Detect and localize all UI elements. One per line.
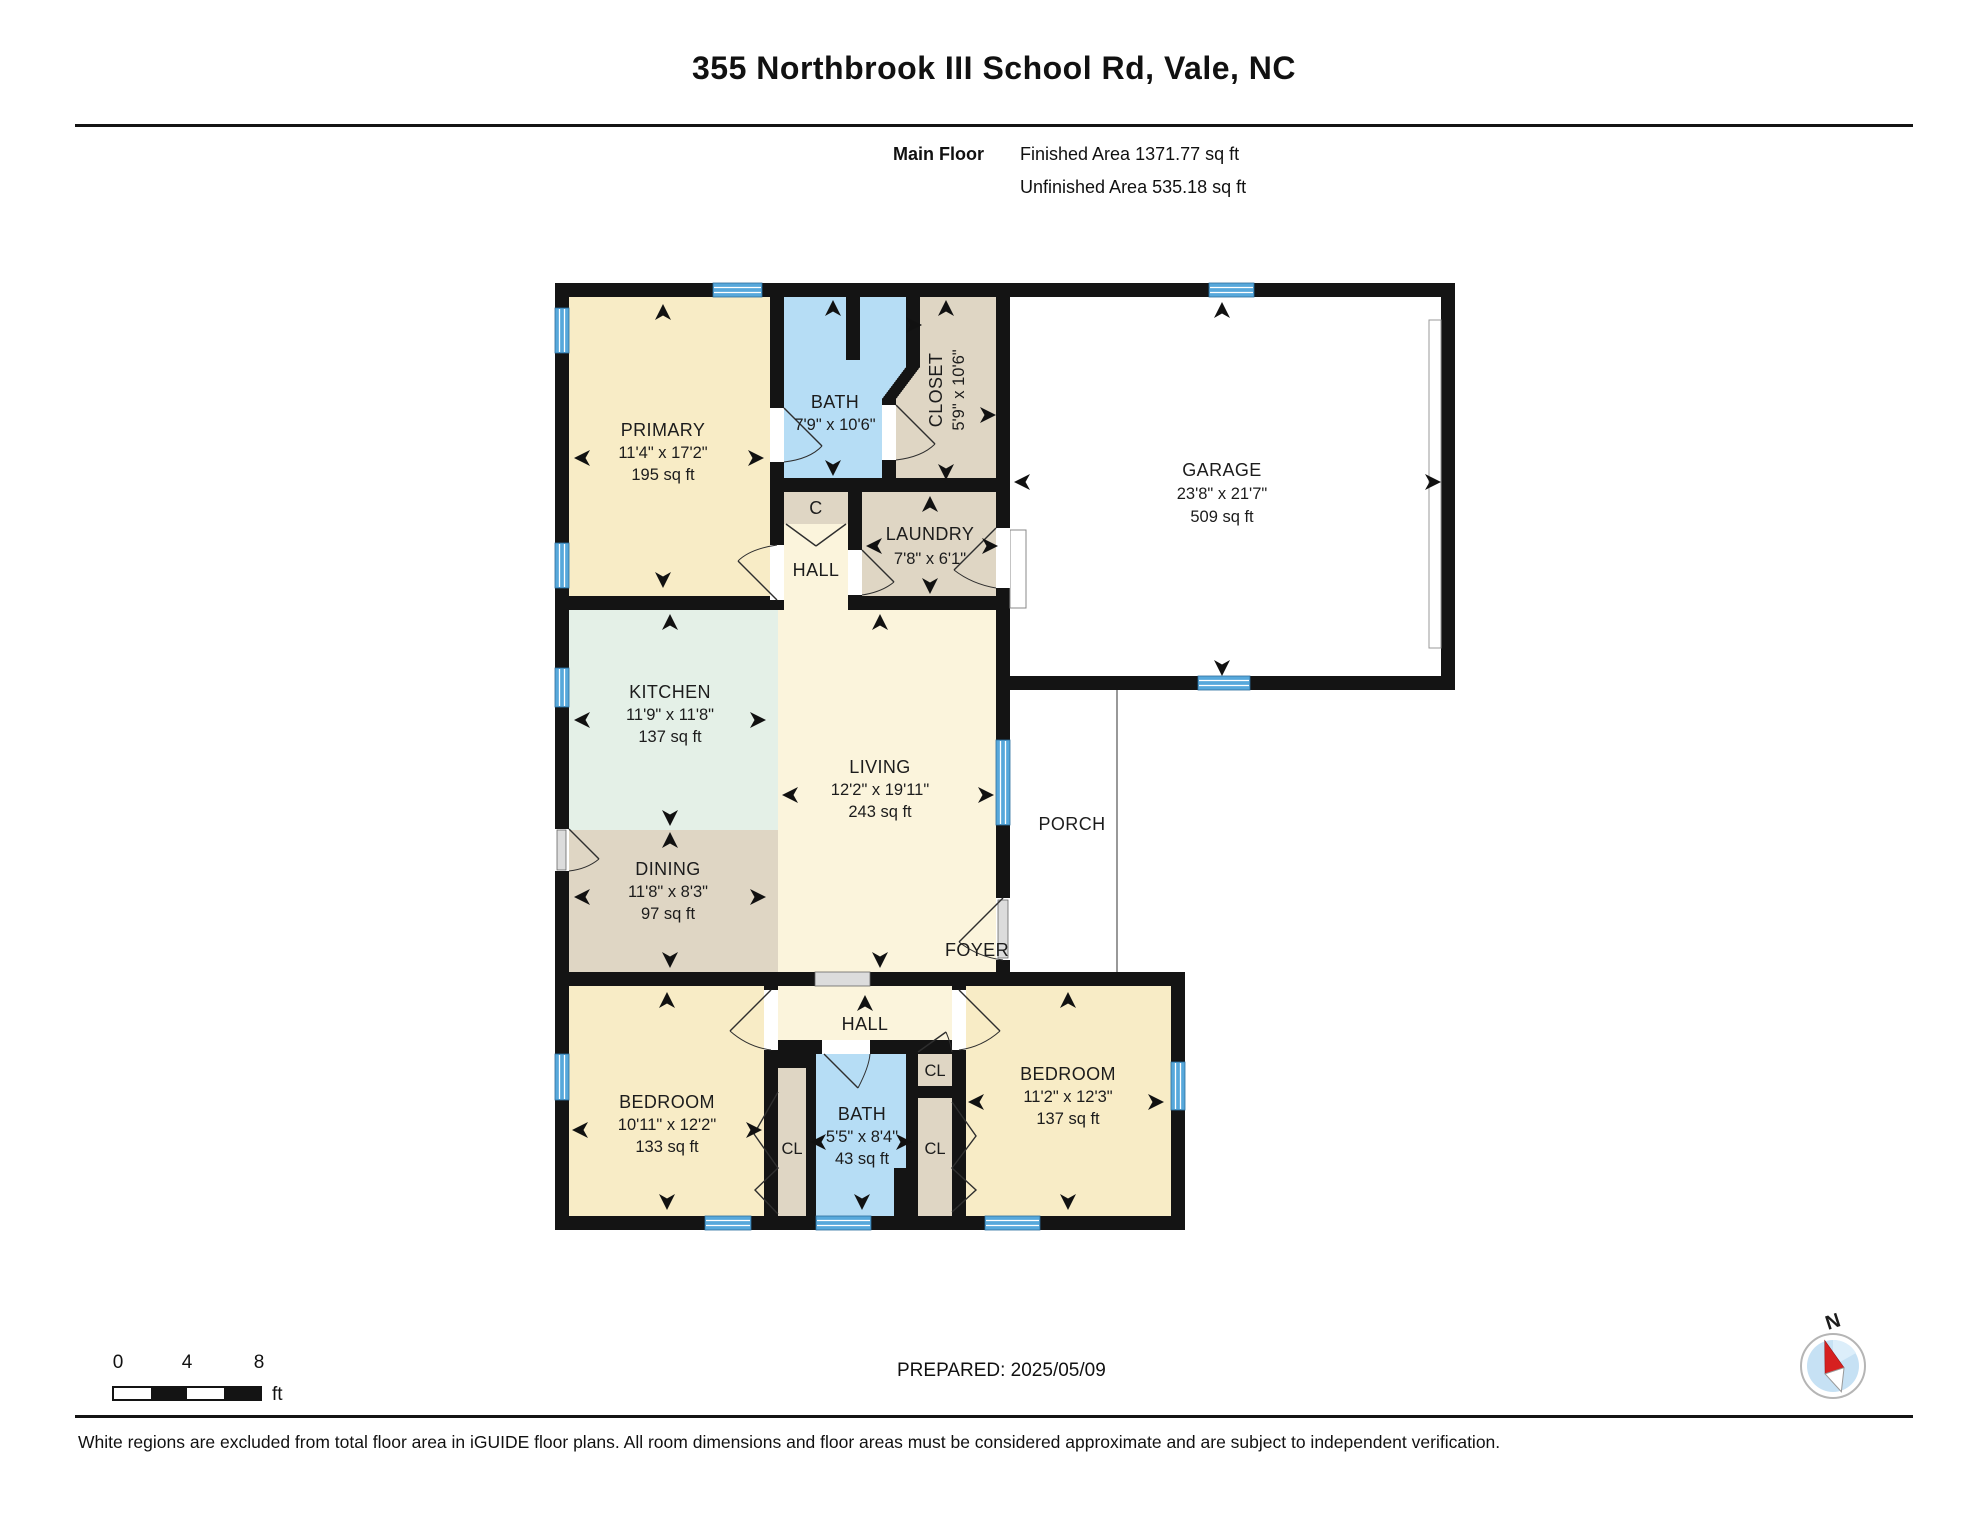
prepared-date: PREPARED: 2025/05/09 — [897, 1360, 1106, 1382]
kitchen-area: 137 sq ft — [638, 728, 702, 746]
scale-segment — [114, 1388, 151, 1399]
scale-segment — [224, 1388, 261, 1399]
foyer-label: FOYER — [945, 940, 1009, 960]
unfinished-area-text: Unfinished Area 535.18 sq ft — [1020, 177, 1246, 198]
bath1-label: BATH — [811, 392, 859, 412]
floor-label: Main Floor — [893, 144, 984, 165]
footer-divider — [75, 1415, 1913, 1418]
page-title: 355 Northbrook III School Rd, Vale, NC — [0, 50, 1988, 87]
living-area: 243 sq ft — [848, 803, 912, 821]
cl-bottom-label: CL — [924, 1140, 945, 1158]
laundry-dims: 7'8" x 6'1" — [894, 550, 966, 568]
living-dims: 12'2" x 19'11" — [831, 781, 930, 799]
living-label: LIVING — [849, 757, 910, 777]
closet-c-label: C — [809, 498, 822, 518]
garage-dims: 23'8" x 21'7" — [1177, 485, 1268, 503]
hall2-label: HALL — [842, 1014, 889, 1034]
opening-hall-lower — [815, 972, 870, 986]
bedroom-left-area: 133 sq ft — [635, 1138, 699, 1156]
porch-label: PORCH — [1038, 814, 1105, 834]
garage-label: GARAGE — [1182, 460, 1261, 480]
window-icon — [816, 1216, 871, 1230]
hall1-label: HALL — [793, 560, 840, 580]
garage-area: 509 sq ft — [1190, 508, 1254, 526]
scale-tick-4: 4 — [181, 1352, 193, 1374]
window-icon — [1171, 1062, 1185, 1110]
room-dining — [569, 830, 778, 972]
scale-tick-8: 8 — [253, 1352, 265, 1374]
bath2-label: BATH — [838, 1104, 886, 1124]
cl-top-label: CL — [924, 1062, 945, 1080]
kitchen-dims: 11'9" x 11'8" — [626, 706, 714, 724]
kitchen-label: KITCHEN — [629, 682, 711, 702]
floor-plan-drawing: PRIMARY 11'4" x 17'2" 195 sq ft BATH 7'9… — [540, 268, 1490, 1243]
bath2-dims: 5'5" x 8'4" — [826, 1128, 898, 1146]
scale-bar — [112, 1386, 262, 1401]
header-divider — [75, 124, 1913, 127]
scale-tick-0: 0 — [112, 1352, 124, 1374]
primary-dims: 11'4" x 17'2" — [618, 444, 707, 462]
primary-label: PRIMARY — [621, 420, 706, 440]
dining-label: DINING — [635, 859, 700, 879]
window-icon — [555, 668, 569, 707]
window-icon — [1198, 676, 1250, 690]
window-icon — [713, 283, 762, 297]
closet-label: CLOSET — [926, 353, 946, 427]
window-icon — [555, 308, 569, 353]
laundry-landing — [1010, 530, 1026, 608]
window-icon — [555, 1054, 569, 1100]
bedroom-left-label: BEDROOM — [619, 1092, 715, 1112]
floor-plan-page: 355 Northbrook III School Rd, Vale, NC M… — [0, 0, 1988, 1536]
bedroom-right-area: 137 sq ft — [1036, 1110, 1100, 1128]
bedroom-right-dims: 11'2" x 12'3" — [1023, 1088, 1112, 1106]
dining-dims: 11'8" x 8'3" — [628, 883, 708, 901]
window-icon — [985, 1216, 1040, 1230]
laundry-label: LAUNDRY — [886, 524, 975, 544]
scale-segment — [151, 1388, 188, 1399]
cl-left-label: CL — [781, 1140, 802, 1158]
scale-segment — [187, 1388, 224, 1399]
window-icon — [555, 543, 569, 588]
finished-area-text: Finished Area 1371.77 sq ft — [1020, 144, 1239, 165]
dining-area: 97 sq ft — [641, 905, 696, 923]
bath1-dims: 7'9" x 10'6" — [794, 416, 875, 434]
disclaimer-text: White regions are excluded from total fl… — [78, 1432, 1500, 1453]
window-icon — [996, 740, 1010, 825]
bath2-area: 43 sq ft — [835, 1150, 890, 1168]
bedroom-left-dims: 10'11" x 12'2" — [618, 1116, 717, 1134]
closet-dims: 5'9" x 10'6" — [950, 349, 968, 430]
bedroom-right-label: BEDROOM — [1020, 1064, 1116, 1084]
scale-unit: ft — [272, 1384, 283, 1406]
compass-icon: N — [1788, 1312, 1878, 1404]
window-icon — [1209, 283, 1254, 297]
window-icon — [705, 1216, 751, 1230]
primary-area: 195 sq ft — [631, 466, 695, 484]
compass-north-label: N — [1823, 1312, 1844, 1335]
